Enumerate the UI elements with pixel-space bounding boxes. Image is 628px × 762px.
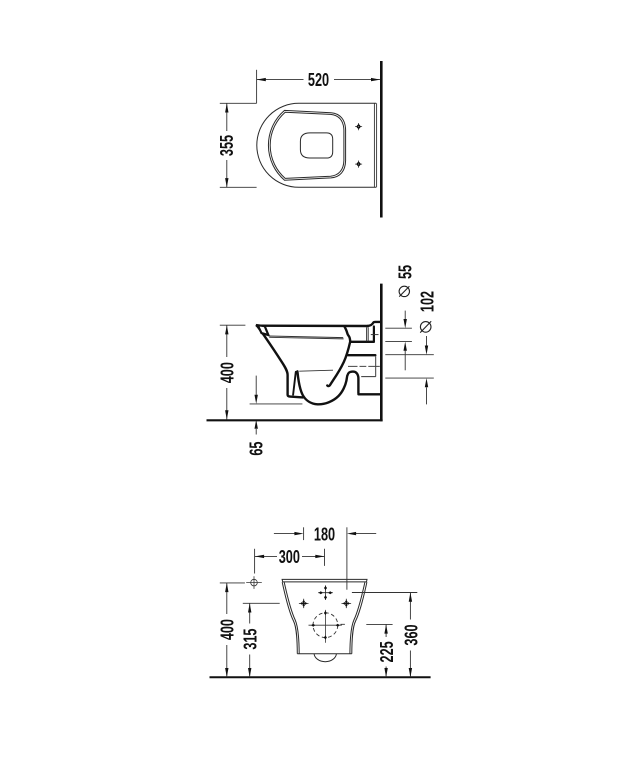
svg-text:355: 355: [218, 135, 238, 156]
svg-text:520: 520: [308, 71, 329, 91]
svg-text:55: 55: [396, 265, 416, 279]
svg-text:400: 400: [218, 362, 238, 383]
svg-text:65: 65: [247, 441, 267, 455]
svg-text:400: 400: [218, 619, 238, 640]
svg-text:300: 300: [279, 548, 300, 568]
svg-text:102: 102: [418, 291, 438, 312]
svg-text:360: 360: [402, 624, 422, 645]
svg-text:315: 315: [241, 628, 261, 649]
svg-text:225: 225: [378, 641, 398, 662]
svg-text:180: 180: [314, 526, 335, 546]
